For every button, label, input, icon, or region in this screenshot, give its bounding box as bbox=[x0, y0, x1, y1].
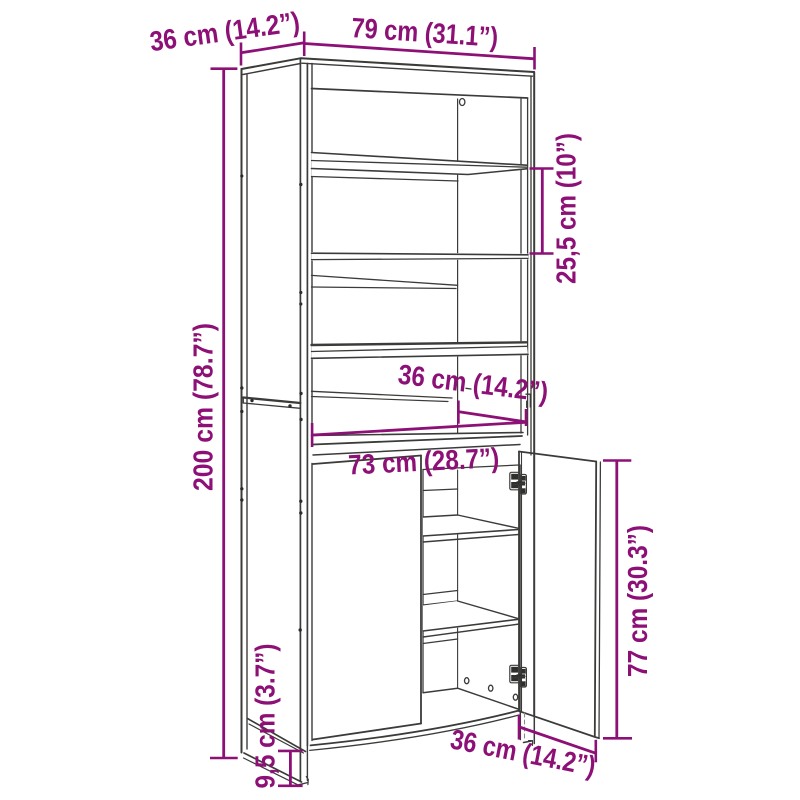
svg-text:77 cm (30.3”): 77 cm (30.3”) bbox=[622, 525, 653, 677]
svg-text:9,5 cm (3.7”): 9,5 cm (3.7”) bbox=[250, 644, 281, 789]
svg-text:25,5 cm (10”): 25,5 cm (10”) bbox=[551, 133, 582, 284]
svg-text:200 cm (78.7”): 200 cm (78.7”) bbox=[188, 323, 219, 491]
